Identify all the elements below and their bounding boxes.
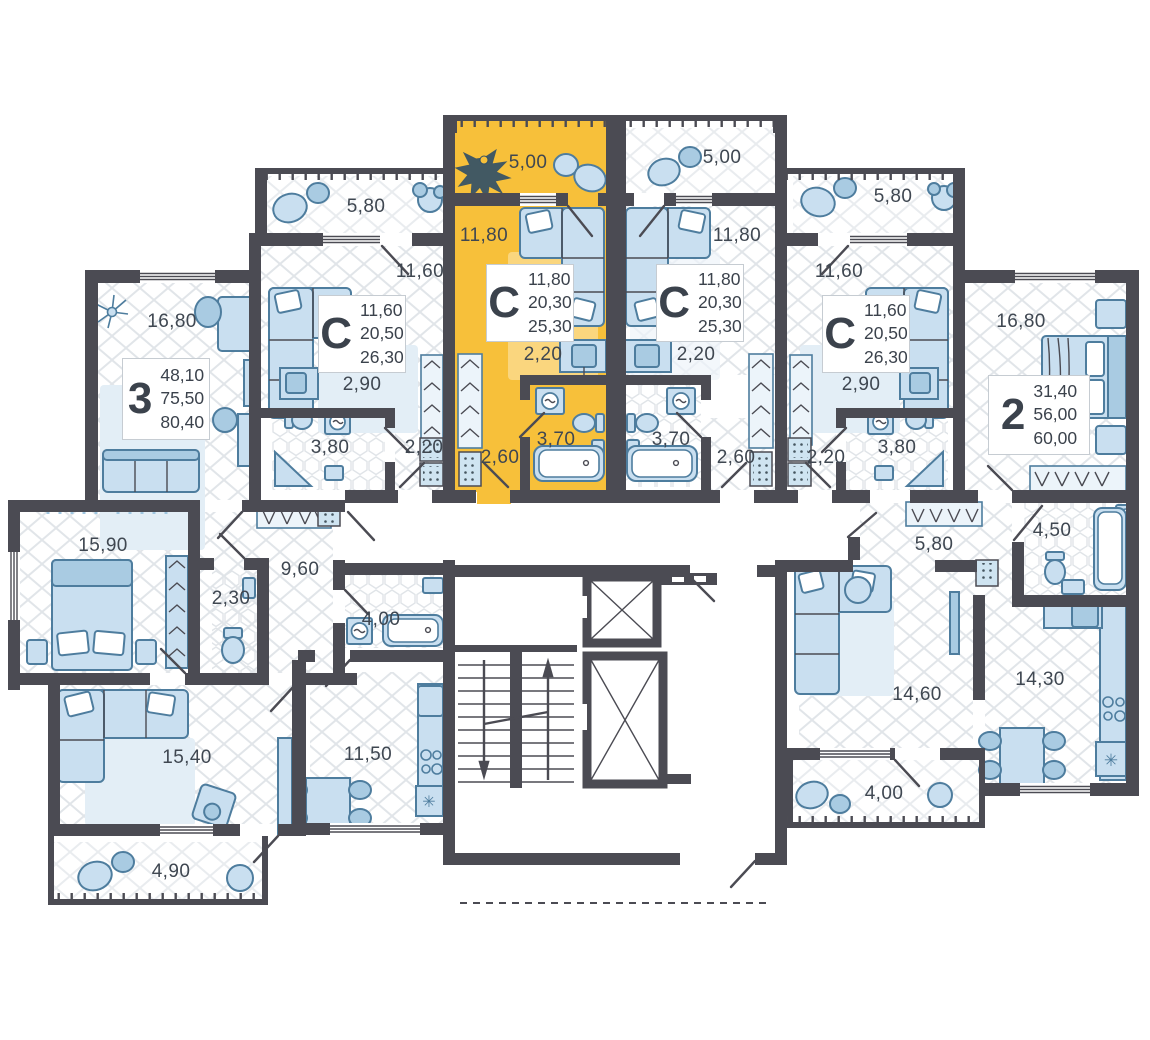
room-area-label: 2,20 [405, 437, 444, 459]
stool [213, 408, 237, 432]
apartment-info-card-studio-left[interactable]: С 11,60 20,50 26,30 [318, 295, 406, 373]
svg-text:✳: ✳ [422, 794, 435, 811]
nightstand [27, 640, 47, 664]
bathtub [627, 446, 697, 481]
room-area-label: 5,80 [915, 534, 954, 556]
tv [950, 592, 959, 654]
room-area-label: 3,80 [878, 437, 917, 459]
floor-plan-drawing: ✳ [0, 0, 1150, 1040]
area-value: 11,60 [864, 299, 908, 322]
desk [218, 297, 254, 351]
area-value: 75,50 [160, 387, 204, 410]
window [160, 824, 213, 836]
bed [52, 560, 132, 670]
toilet [222, 628, 244, 663]
window [323, 233, 380, 246]
room-area-label: 3,70 [652, 429, 691, 451]
room-area-label: 2,20 [677, 344, 716, 366]
apartment-type-label: С [488, 283, 520, 323]
apartment-type-label: С [320, 314, 352, 354]
elevator-shafts [580, 573, 717, 784]
room-area-label: 4,90 [152, 861, 191, 883]
sink [325, 466, 343, 480]
wardrobe [421, 355, 443, 445]
vent-shaft [459, 452, 481, 486]
apartment-type-label: 2 [1001, 395, 1025, 435]
nightstand [136, 640, 156, 664]
room-area-label: 16,80 [996, 311, 1046, 333]
nightstand [1096, 300, 1126, 328]
kitchen-sink [418, 686, 443, 716]
area-value: 20,30 [528, 291, 572, 314]
area-value: 25,30 [528, 315, 572, 338]
room-area-label: 15,40 [162, 747, 212, 769]
fridge-icon: ✳ [416, 786, 443, 816]
plant-icon [227, 865, 253, 891]
wardrobe [166, 556, 188, 668]
toilet [1045, 552, 1065, 584]
room-area-label: 11,80 [460, 225, 508, 247]
room-area-label: 2,60 [717, 447, 756, 469]
room-area-label: 11,50 [344, 744, 392, 766]
area-value: 31,40 [1033, 380, 1077, 403]
room-area-label: 4,50 [1033, 520, 1072, 542]
apartment-info-card-studio-highlighted[interactable]: С 11,80 20,30 25,30 [486, 264, 574, 342]
room-area-label: 11,80 [713, 225, 761, 247]
room-area-label: 5,80 [874, 186, 913, 208]
bathtub [1094, 508, 1126, 590]
apartment-type-label: 3 [128, 379, 152, 419]
apartment-info-card-studio-right[interactable]: С 11,60 20,50 26,30 [822, 295, 910, 373]
room-area-label: 2,30 [212, 588, 251, 610]
area-value: 20,50 [360, 322, 404, 345]
window [140, 270, 215, 283]
apartment-info-card-3room[interactable]: 3 48,10 75,50 80,40 [122, 358, 210, 440]
kitchen-sink-counter [625, 340, 671, 372]
room-area-label: 2,20 [524, 344, 563, 366]
area-value: 11,80 [528, 268, 572, 291]
room-area-label: 2,90 [842, 374, 881, 396]
nightstand [1096, 426, 1126, 454]
sink [423, 578, 443, 593]
washing-machine-icon [667, 388, 695, 414]
wardrobe [1030, 466, 1126, 492]
area-value: 80,40 [160, 411, 204, 434]
area-value: 26,30 [864, 346, 908, 369]
room-area-label: 4,00 [865, 783, 904, 805]
area-value: 25,30 [698, 315, 742, 338]
room-area-label: 3,80 [311, 437, 350, 459]
window [850, 233, 907, 246]
sink [1062, 580, 1084, 594]
apartment-type-label: С [658, 283, 690, 323]
area-value: 20,30 [698, 291, 742, 314]
area-value: 11,80 [698, 268, 742, 291]
window [1020, 783, 1090, 796]
kitchen-sink-counter [560, 340, 606, 375]
area-value: 26,30 [360, 346, 404, 369]
sink [875, 466, 893, 480]
vent-shaft [976, 560, 998, 586]
apartment-type-label: С [824, 314, 856, 354]
window [330, 823, 420, 835]
stairwell [455, 645, 577, 788]
area-value: 20,50 [864, 322, 908, 345]
room-area-label: 5,00 [509, 152, 548, 174]
apartment-info-card-studio-center-right[interactable]: С 11,80 20,30 25,30 [656, 264, 744, 342]
wardrobe [790, 355, 812, 445]
room-area-label: 3,70 [537, 429, 576, 451]
room-area-label: 4,00 [362, 609, 401, 631]
plant-icon [845, 577, 871, 603]
room-area-label: 5,80 [347, 196, 386, 218]
window [8, 552, 20, 620]
window [820, 748, 890, 760]
fridge-icon: ✳ [1096, 742, 1126, 776]
room-area-label: 14,60 [892, 684, 942, 706]
area-value: 11,60 [360, 299, 404, 322]
room-area-label: 16,80 [147, 311, 197, 333]
washing-machine-icon [536, 388, 564, 414]
area-value: 48,10 [160, 364, 204, 387]
room-area-label: 9,60 [281, 559, 320, 581]
room-area-label: 14,30 [1015, 669, 1065, 691]
desk-chair [195, 297, 221, 327]
bathtub [534, 446, 604, 481]
room-area-label: 2,90 [343, 374, 382, 396]
svg-text:✳: ✳ [1104, 751, 1118, 770]
area-value: 60,00 [1033, 427, 1077, 450]
room-area-label: 11,60 [815, 261, 863, 283]
room-area-label: 2,60 [481, 447, 520, 469]
hallway-wardrobe [906, 502, 982, 526]
wardrobe [749, 354, 773, 448]
room-area-label: 5,00 [703, 147, 742, 169]
wardrobe [458, 354, 482, 448]
room-area-label: 15,90 [78, 535, 128, 557]
room-area-label: 2,20 [807, 447, 846, 469]
window [520, 193, 556, 206]
room-area-label: 11,60 [396, 261, 444, 283]
floor-plan: ✳ [0, 0, 1150, 1040]
area-value: 56,00 [1033, 403, 1077, 426]
sofa [103, 450, 199, 492]
bookshelf [278, 738, 292, 834]
kitchen-sink-counter [280, 368, 318, 399]
toilet [573, 414, 604, 432]
window [676, 193, 712, 206]
window [1015, 270, 1095, 283]
apartment-info-card-2room[interactable]: 2 31,40 56,00 60,00 [988, 375, 1090, 455]
plant-icon [928, 783, 952, 807]
